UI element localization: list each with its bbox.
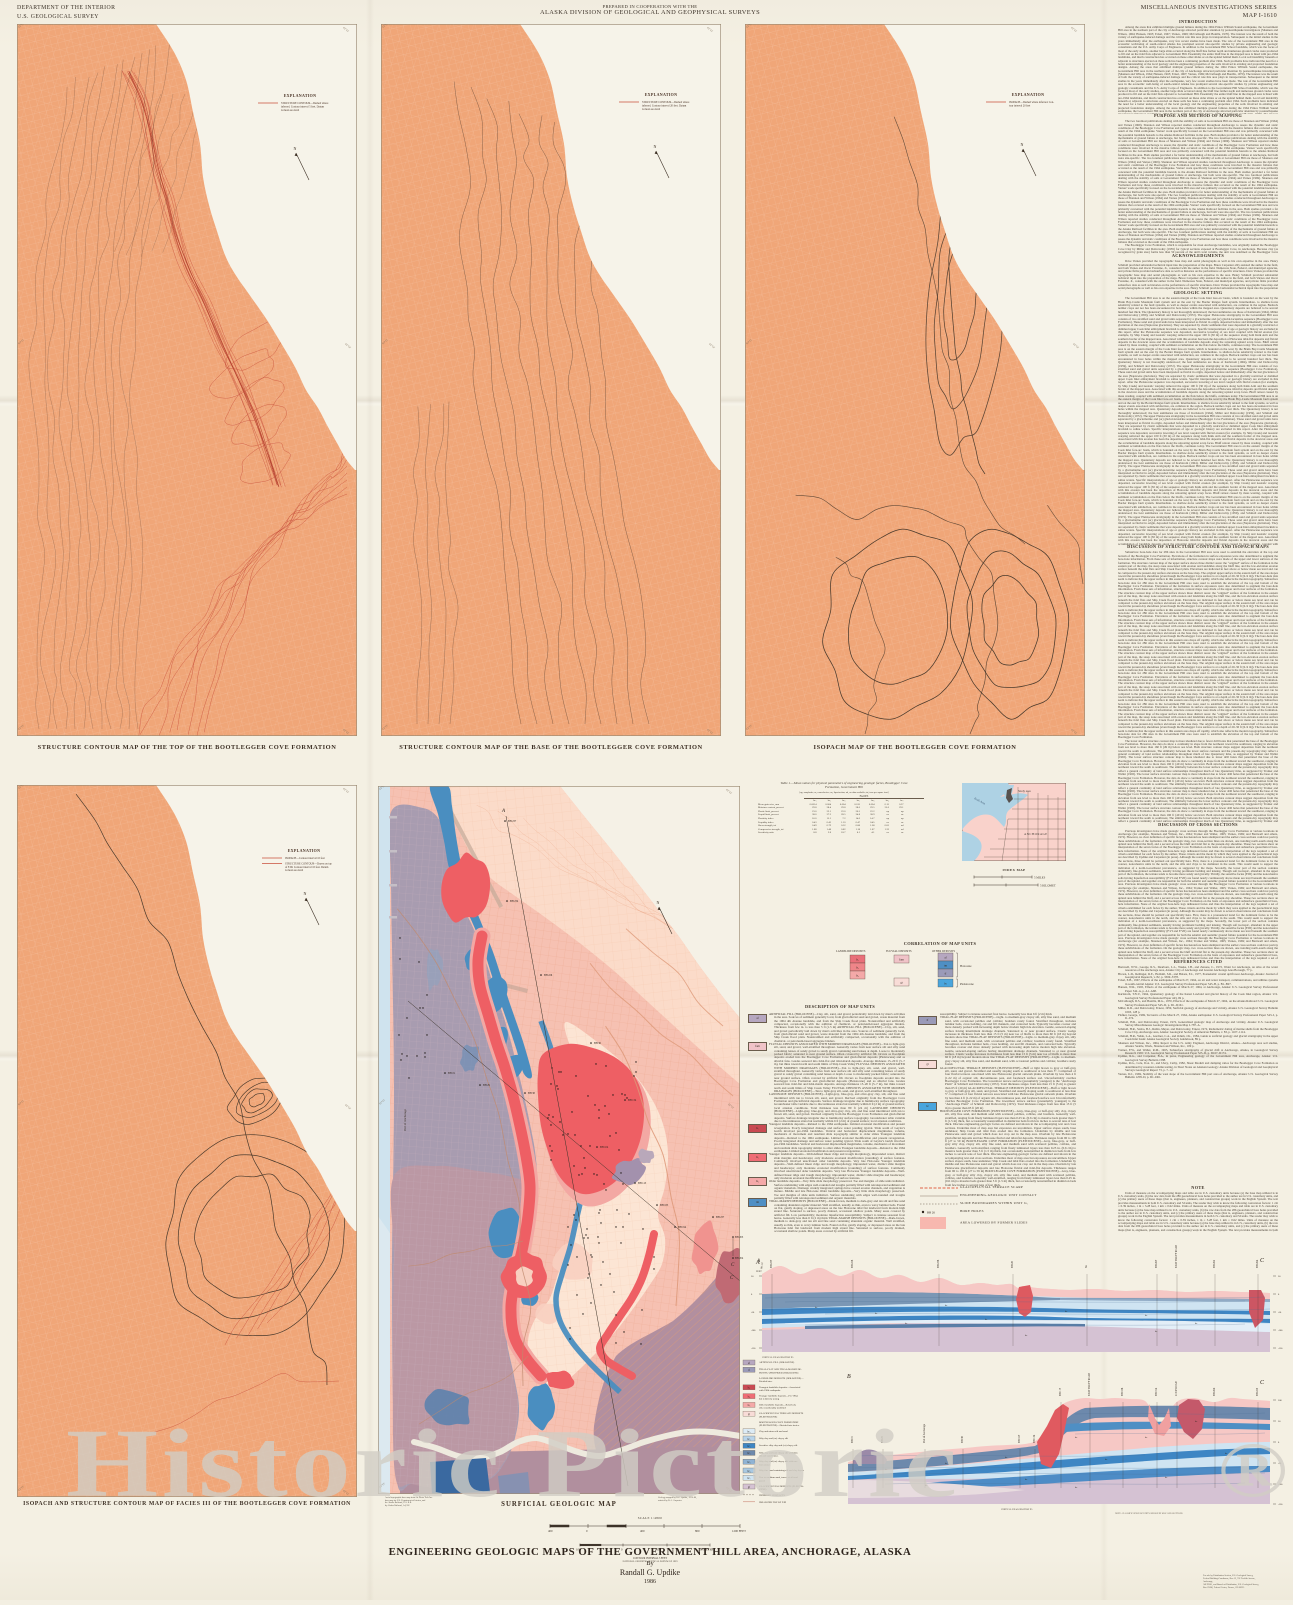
- svg-text:BH 194: BH 194: [1155, 1387, 1158, 1396]
- svg-text:EXPLANATION: EXPLANATION: [645, 92, 678, 97]
- svg-text:is mean sea level: is mean sea level: [642, 108, 661, 111]
- svg-text:C: C: [1260, 1380, 1265, 1386]
- svg-text:EXPLANATION: EXPLANATION: [284, 93, 317, 98]
- svg-text:EXPLANATION: EXPLANATION: [288, 848, 321, 853]
- svg-text:but relatively young: but relatively young: [759, 1398, 780, 1401]
- svg-text:ANCHORAGE: ANCHORAGE: [1024, 832, 1048, 836]
- svg-text:100: 100: [1278, 1399, 1282, 1402]
- svg-text:LOOP ROAD: LOOP ROAD: [1175, 1381, 1178, 1396]
- svg-text:BH 38: BH 38: [528, 1092, 536, 1095]
- svg-text:bc: bc: [1165, 1476, 1167, 1479]
- svg-text:bc: bc: [1195, 1322, 1197, 1325]
- svg-text:BH 36: BH 36: [594, 1042, 602, 1045]
- svg-text:A: A: [756, 1259, 761, 1264]
- svg-text:Study area: Study area: [1018, 789, 1031, 793]
- svg-text:OTHER DEPOSITS: OTHER DEPOSITS: [932, 950, 956, 953]
- svg-text:bc: bc: [1025, 1334, 1027, 1337]
- svg-text:-150: -150: [751, 1347, 756, 1350]
- svg-text:400: 400: [640, 1529, 645, 1533]
- svg-text:BH 26: BH 26: [927, 1210, 935, 1214]
- svg-text:tf: tf: [748, 1369, 750, 1372]
- svg-text:ls₂: ls₂: [748, 1395, 751, 1398]
- svg-text:BH 238: BH 238: [937, 1259, 940, 1268]
- svg-text:bc: bc: [945, 1304, 947, 1307]
- svg-text:bc: bc: [875, 1312, 877, 1315]
- svg-text:BH 228: BH 228: [851, 1259, 854, 1268]
- svg-text:FEET: FEET: [756, 1270, 762, 1273]
- svg-text:BH 226: BH 226: [544, 974, 553, 977]
- svg-text:BH 204: BH 204: [1256, 1259, 1259, 1268]
- svg-text:FLUVIAL DEPOSITS: FLUVIAL DEPOSITS: [886, 950, 912, 953]
- svg-text:0: 0: [751, 1293, 753, 1296]
- svg-text:BH 229: BH 229: [1256, 1387, 1259, 1396]
- svg-text:BH 186: BH 186: [1121, 1387, 1124, 1396]
- svg-text:Pleistocene: Pleistocene: [960, 982, 974, 986]
- svg-text:BH 237: BH 237: [716, 1216, 725, 1219]
- svg-text:BH 237: BH 237: [770, 1259, 773, 1268]
- svg-text:C: C: [731, 1263, 735, 1268]
- svg-text:ls₂: ls₂: [856, 965, 859, 969]
- svg-text:BH 237: BH 237: [761, 1261, 764, 1269]
- svg-text:C: C: [1260, 1258, 1265, 1264]
- svg-text:BH 234: BH 234: [510, 900, 519, 903]
- svg-text:0: 0: [586, 1529, 588, 1533]
- svg-text:is mean sea level: is mean sea level: [281, 109, 300, 112]
- svg-text:BH 117: BH 117: [1059, 1387, 1062, 1396]
- svg-text:50: 50: [751, 1275, 754, 1278]
- svg-text:5 KILOMETERS: 5 KILOMETERS: [1040, 884, 1056, 888]
- svg-text:BH 29: BH 29: [483, 1084, 491, 1087]
- svg-text:BH 237: BH 237: [508, 820, 517, 823]
- svg-text:Port of Anchorage: Port of Anchorage: [403, 1108, 407, 1131]
- svg-text:N: N: [654, 144, 657, 149]
- svg-text:-50: -50: [751, 1311, 755, 1314]
- svg-text:5 MILES: 5 MILES: [1034, 876, 1046, 880]
- svg-text:BH 113: BH 113: [638, 1182, 647, 1185]
- svg-text:bc: bc: [905, 1322, 907, 1325]
- svg-text:LANDSLIDE DEPOSITS: LANDSLIDE DEPOSITS: [836, 950, 866, 953]
- svg-text:EAST BLUFF ROAD: EAST BLUFF ROAD: [1088, 1373, 1091, 1396]
- svg-text:BH 28: BH 28: [1011, 1260, 1014, 1268]
- svg-text:800: 800: [695, 1529, 700, 1533]
- svg-text:N: N: [657, 900, 660, 905]
- svg-text:tf: tf: [945, 971, 947, 975]
- svg-text:-100: -100: [1278, 1329, 1283, 1332]
- svg-text:POSITS, UNDIVIDED (HOLOCENE): POSITS, UNDIVIDED (HOLOCENE): [759, 1371, 799, 1374]
- svg-text:400: 400: [548, 1529, 553, 1533]
- svg-text:BH 202: BH 202: [1213, 1259, 1216, 1268]
- svg-text:gt: gt: [900, 980, 903, 984]
- svg-text:bc: bc: [1145, 1314, 1147, 1317]
- svg-text:af: af: [748, 1362, 750, 1365]
- svg-text:ISOPACH—Contour interval 10 fe: ISOPACH—Contour interval 10 feet: [285, 857, 325, 860]
- svg-text:with 1964 earthquake: with 1964 earthquake: [759, 1389, 782, 1392]
- svg-text:BH 194: BH 194: [678, 1226, 687, 1229]
- svg-text:-50: -50: [1278, 1311, 1282, 1314]
- svg-text:50: 50: [1278, 1420, 1281, 1423]
- svg-text:BH 207: BH 207: [1155, 1259, 1158, 1268]
- svg-text:bc: bc: [1195, 1420, 1197, 1423]
- svg-text:1200 FEET: 1200 FEET: [732, 1529, 746, 1533]
- svg-text:BH 204: BH 204: [735, 1257, 744, 1260]
- svg-text:N: N: [1021, 142, 1024, 147]
- svg-text:N: N: [294, 146, 297, 151]
- svg-text:-150: -150: [1278, 1347, 1283, 1350]
- svg-text:fam: fam: [899, 957, 904, 961]
- svg-text:BH 104: BH 104: [600, 1146, 609, 1149]
- svg-text:-100: -100: [751, 1329, 756, 1332]
- svg-text:0: 0: [1278, 1293, 1280, 1296]
- svg-text:Divided into:: Divided into:: [759, 1380, 773, 1383]
- svg-text:is mean sea level: is mean sea level: [285, 869, 304, 872]
- svg-text:af: af: [944, 955, 946, 959]
- svg-text:Holocene: Holocene: [960, 964, 972, 968]
- svg-text:N: N: [304, 891, 307, 896]
- svg-text:ls₁: ls₁: [748, 1387, 751, 1390]
- svg-text:B: B: [847, 1374, 851, 1380]
- svg-text:BH 185: BH 185: [660, 1204, 669, 1207]
- svg-text:EXPLANATION: EXPLANATION: [1012, 92, 1045, 97]
- svg-text:BH 19: BH 19: [448, 1072, 456, 1075]
- svg-text:BH 134: BH 134: [628, 1099, 637, 1102]
- svg-text:ls₃: ls₃: [856, 973, 859, 977]
- svg-text:bc: bc: [815, 1306, 817, 1309]
- svg-text:ls₁: ls₁: [856, 957, 859, 961]
- svg-text:BH 203: BH 203: [735, 1236, 744, 1239]
- svg-text:BH 200: BH 200: [1213, 1387, 1216, 1396]
- svg-text:VERTICAL EXAGGERATION X5: VERTICAL EXAGGERATION X5: [762, 1356, 794, 1359]
- svg-text:ls₃: ls₃: [748, 1404, 751, 1407]
- svg-text:tour interval 20 feet: tour interval 20 feet: [1009, 104, 1031, 107]
- svg-text:bc: bc: [985, 1318, 987, 1321]
- svg-text:50: 50: [1278, 1275, 1281, 1278]
- svg-text:Sk: Sk: [1085, 1265, 1088, 1268]
- svg-text:ARTIFICIAL FILL (HOLOCENE): ARTIFICIAL FILL (HOLOCENE): [759, 1361, 794, 1364]
- svg-text:EAST BLUFF ROAD: EAST BLUFF ROAD: [1175, 1245, 1178, 1268]
- svg-text:bc: bc: [1065, 1310, 1067, 1313]
